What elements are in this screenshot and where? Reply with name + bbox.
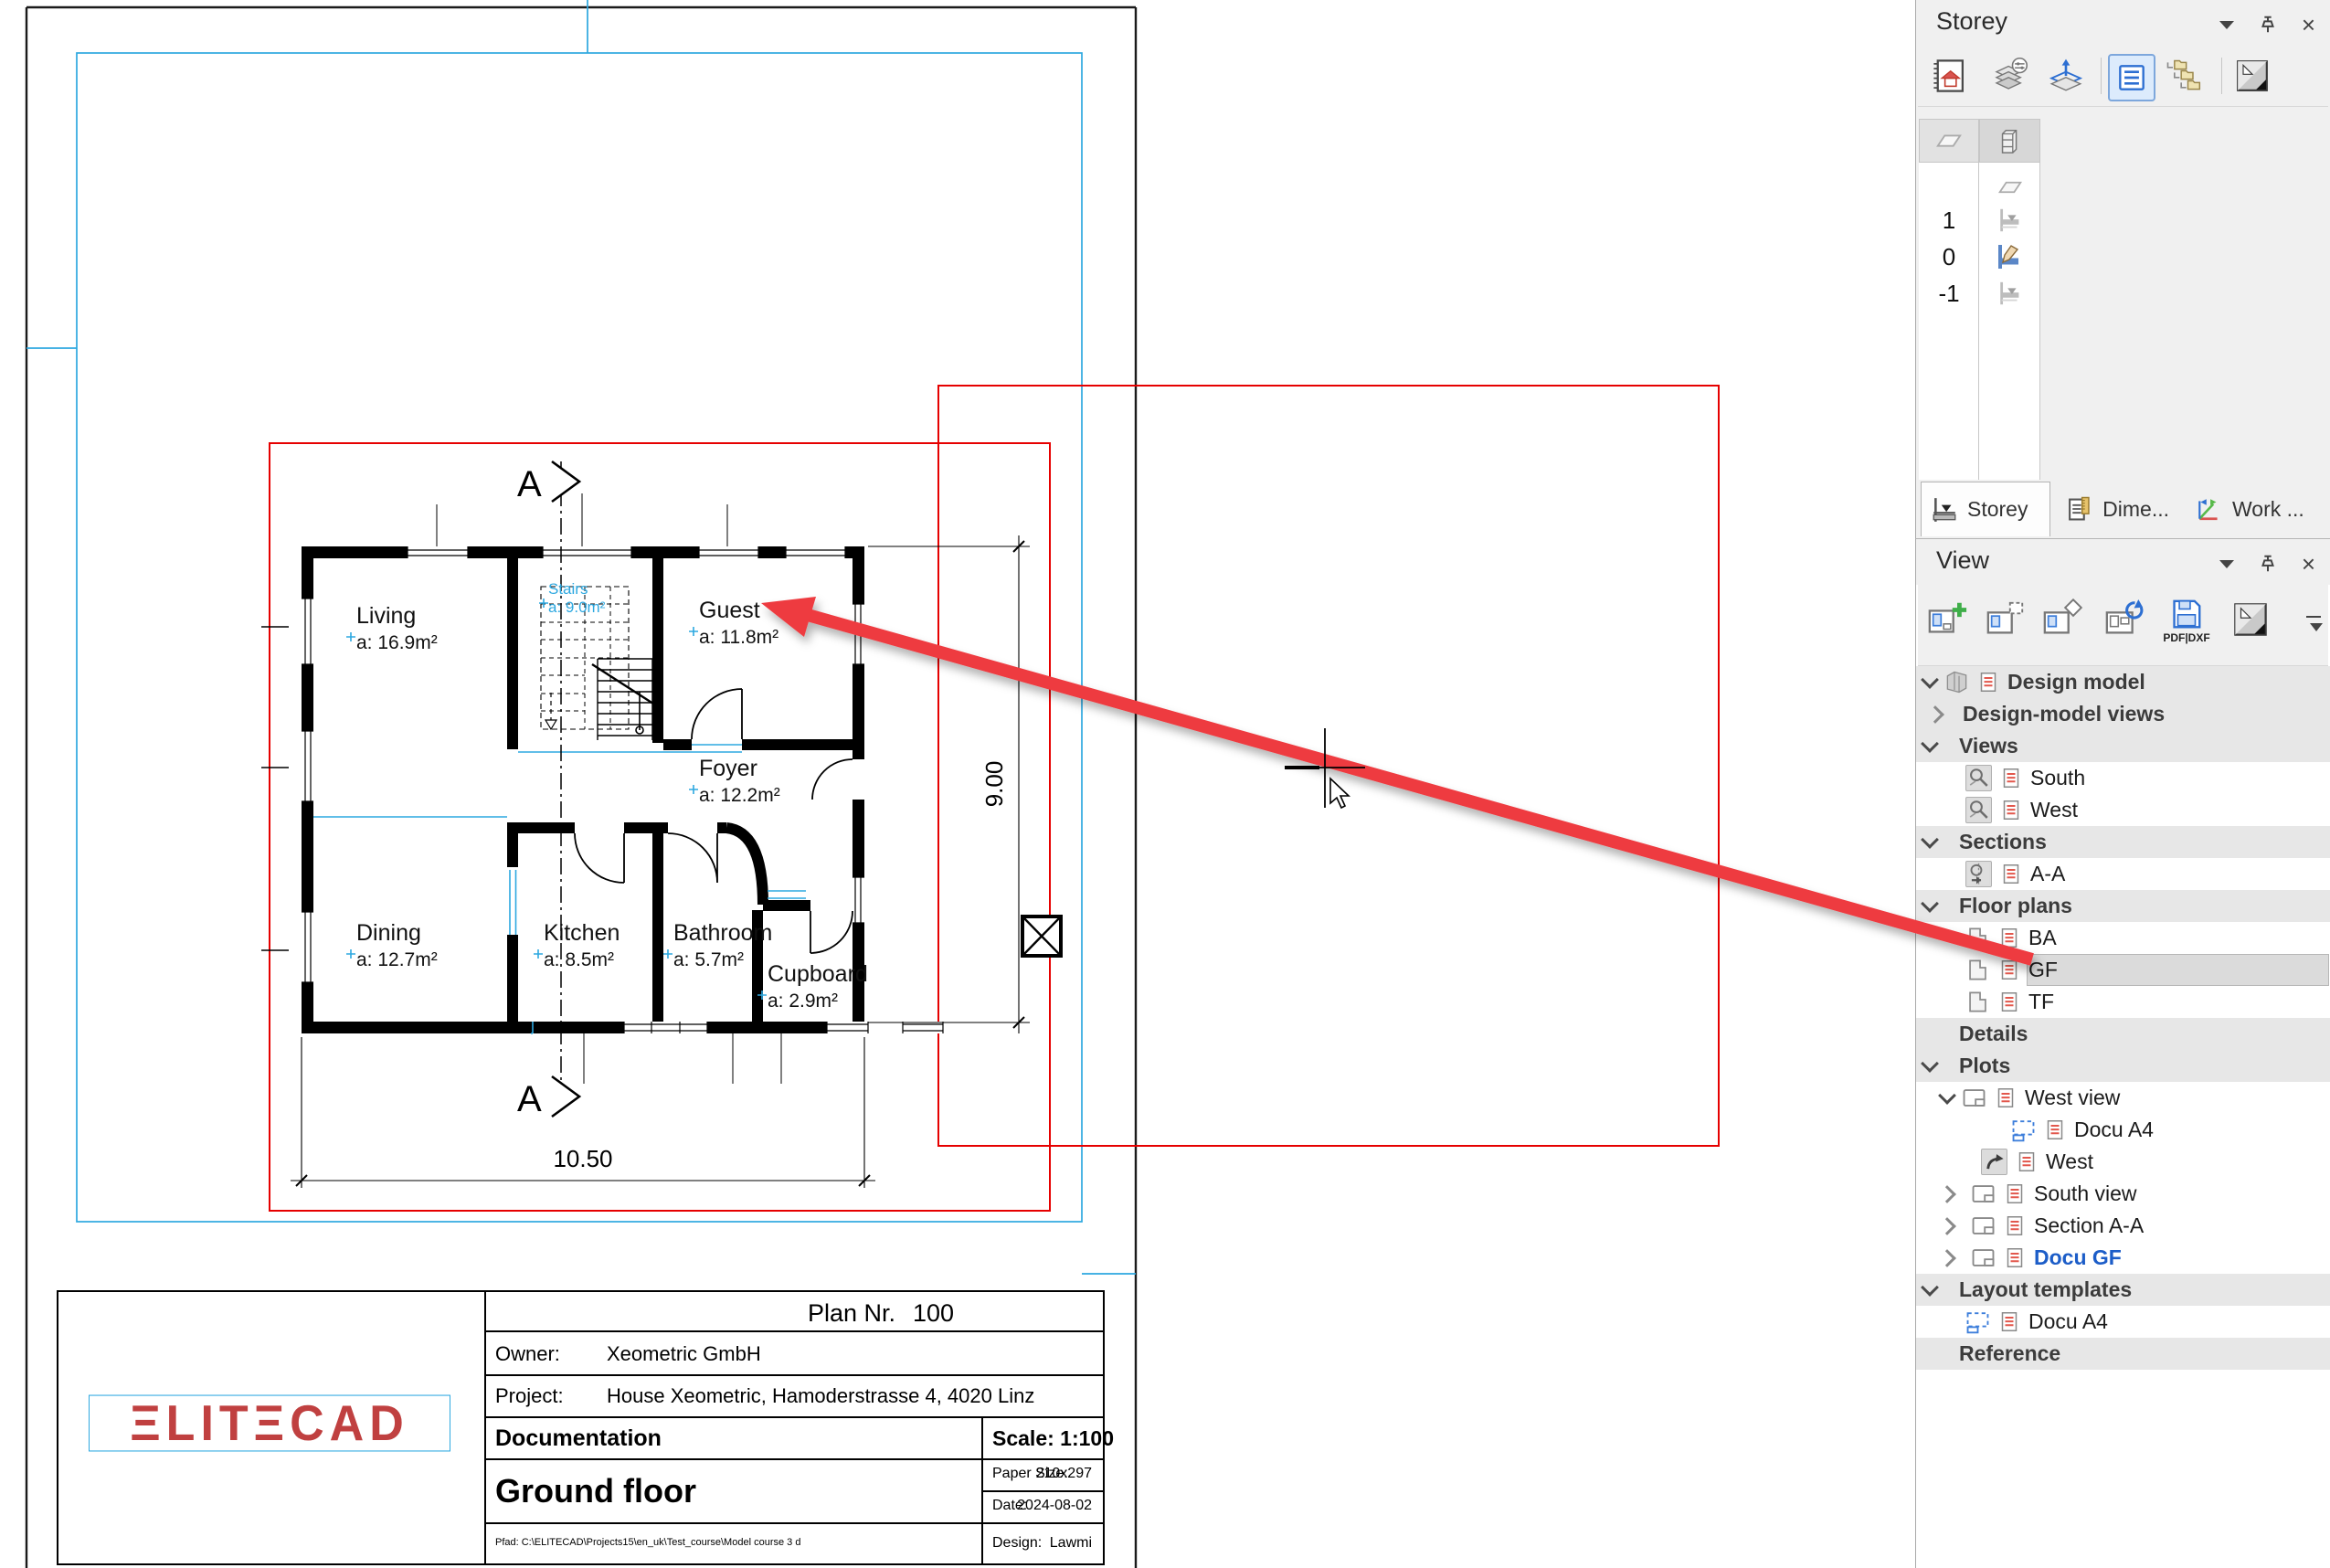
doc-icon	[1998, 1309, 2020, 1334]
level-icon	[1996, 280, 2024, 307]
doc-icon	[2044, 1118, 2066, 1142]
doc-icon	[2004, 1181, 2026, 1206]
storey-col-plan-header[interactable]	[1919, 119, 1979, 163]
storey-level-1-state[interactable]	[1979, 203, 2040, 238]
invert-display-button[interactable]	[2229, 598, 2272, 641]
storey-up-icon	[2047, 57, 2085, 95]
export-pdf-dxf-button[interactable]: PDF|DXF	[2159, 590, 2214, 651]
tab-storey[interactable]: Storey	[1921, 482, 2050, 536]
storey-level-1[interactable]: 1	[1919, 203, 1979, 238]
plan-parallelogram-icon	[1997, 175, 2023, 200]
storey-level-1-label: 1	[1919, 207, 1979, 235]
layout-frame-icon	[2011, 1118, 2036, 1142]
room-bathroom: Bathroom	[673, 920, 772, 946]
pin-icon[interactable]	[2258, 554, 2278, 574]
view-panel: View × PDF|DXF Design model Design-model…	[1915, 538, 2330, 1568]
tree-item-west-view[interactable]: West view	[1916, 1082, 2330, 1114]
storey-level-minus1[interactable]: -1	[1919, 276, 1979, 311]
doc-icon	[1995, 1086, 2017, 1110]
windows-right	[853, 604, 864, 923]
doc-icon	[1998, 958, 2020, 982]
crosshair-cursor	[1285, 728, 1365, 808]
floor-title: Ground floor	[495, 1472, 696, 1510]
svg-text:A: A	[517, 1079, 542, 1119]
tab-storey-label: Storey	[1967, 497, 2028, 522]
update-view-button[interactable]	[2102, 598, 2146, 641]
owner-value: Xeometric GmbH	[607, 1342, 761, 1366]
tree-item-a-a[interactable]: A-A	[1916, 858, 2330, 890]
toolbar-overflow-icon[interactable]	[2306, 616, 2321, 618]
room-stairs: Stairs	[548, 580, 588, 598]
stack-icon	[1996, 127, 2024, 154]
tree-item-design-model[interactable]: Design model	[1916, 666, 2330, 698]
room-kitchen: Kitchen	[544, 920, 620, 946]
invert-display-button[interactable]	[2230, 54, 2274, 98]
cyan-accents	[313, 745, 806, 1033]
plan-parallelogram-icon	[1935, 127, 1963, 154]
storey-structure-button[interactable]	[2044, 54, 2088, 98]
panel-menu-icon[interactable]	[2219, 21, 2234, 29]
storey-settings-button[interactable]	[1987, 54, 2031, 98]
storey-settings-icon	[1990, 57, 2028, 95]
doors	[575, 689, 853, 953]
storey-list-button[interactable]	[2108, 54, 2155, 101]
view-tree: Design model Design-model views Views So…	[1916, 666, 2330, 1370]
view-icon	[1965, 797, 1992, 823]
dimension-width-text: 10.50	[553, 1145, 612, 1172]
tree-item-reference[interactable]: Reference	[1916, 1338, 2330, 1370]
panel-menu-icon[interactable]	[2219, 560, 2234, 568]
dimension-width	[291, 1037, 875, 1188]
floor-plan-icon	[1965, 958, 1990, 982]
doc-icon	[2000, 862, 2022, 886]
copy-view-button[interactable]	[1984, 598, 2028, 641]
pdf-dxf-label: PDF|DXF	[2163, 631, 2209, 644]
tree-item-design-model-views[interactable]: Design-model views	[1916, 698, 2330, 730]
tree-item-docu-a4-west[interactable]: Docu A4	[1916, 1114, 2330, 1146]
plot-origin-marker	[1022, 916, 1061, 956]
tree-item-south-view[interactable]: South view	[1916, 1178, 2330, 1210]
storey-level-minus1-state[interactable]	[1979, 276, 2040, 311]
new-view-icon	[1926, 599, 1968, 641]
tree-item-section-a-a[interactable]: Section A-A	[1916, 1210, 2330, 1242]
tree-item-ba[interactable]: BA	[1916, 922, 2330, 954]
plot-icon	[1971, 1245, 1996, 1270]
storey-panel: Storey × 1 0 -1	[1915, 0, 2330, 538]
room-guest: Guest	[699, 598, 760, 623]
mouse-pointer	[1330, 779, 1349, 808]
update-view-icon	[2103, 599, 2145, 641]
invert-icon	[2234, 58, 2271, 94]
elitecad-logo: ΞLITΞCAD	[89, 1395, 450, 1452]
room-foyer: Foyer	[699, 756, 757, 781]
design-model-icon	[1944, 670, 1969, 694]
close-icon[interactable]: ×	[2302, 16, 2315, 34]
room-guest-area: a: 11.8m²	[699, 627, 778, 648]
design-label: Design:	[992, 1535, 1042, 1552]
doc-icon	[2000, 798, 2022, 822]
plot-frame-left[interactable]	[270, 443, 1050, 1211]
storey-level-0[interactable]: 0	[1919, 239, 1979, 274]
tree-item-plots[interactable]: Plots	[1916, 1050, 2330, 1082]
doc-icon	[1998, 926, 2020, 950]
tree-item-tf[interactable]: TF	[1916, 986, 2330, 1018]
section-icon	[1965, 861, 1992, 887]
room-dining: Dining	[356, 920, 421, 946]
room-cupboard: Cupboard	[768, 961, 868, 987]
svg-text:A: A	[517, 464, 542, 504]
tree-item-west[interactable]: West	[1916, 794, 2330, 826]
workplane-tab-icon	[2196, 495, 2223, 523]
windows-left	[261, 599, 313, 982]
plot-path: Pfad: C:\ELITECAD\Projects15\en_uk\Test_…	[495, 1537, 800, 1548]
room-foyer-area: a: 12.2m²	[699, 785, 780, 806]
room-bathroom-area: a: 5.7m²	[673, 949, 744, 970]
pin-icon[interactable]	[2258, 15, 2278, 35]
new-view-button[interactable]	[1925, 598, 1969, 641]
view-icon	[1965, 765, 1992, 791]
title-block: ΞLITΞCAD Plan Nr. 100 Owner: Xeometric G…	[57, 1290, 1105, 1565]
storey-list-icon	[2114, 60, 2149, 95]
room-cupboard-area: a: 2.9m²	[768, 991, 838, 1012]
doc-title: Documentation	[495, 1425, 662, 1452]
plan-nr-label: Plan Nr.	[808, 1299, 895, 1328]
dimensions-tab-icon	[2067, 495, 2093, 523]
plot-frame-right[interactable]	[938, 386, 1719, 1146]
save-pdf-icon	[2169, 597, 2204, 631]
tree-item-gf[interactable]: GF	[1916, 954, 2330, 986]
doc-icon	[2004, 1245, 2026, 1270]
annotation-arrow	[761, 597, 2032, 959]
axis-extensions	[437, 493, 781, 1084]
owner-label: Owner:	[495, 1342, 560, 1366]
storey-tab-icon	[1931, 496, 1958, 524]
storey-row-roof[interactable]	[1979, 170, 2040, 205]
room-dining-area: a: 12.7m²	[356, 949, 438, 970]
tree-item-views[interactable]: Views	[1916, 730, 2330, 762]
scale-label: Scale: 1:100	[992, 1426, 1114, 1451]
tree-item-floor-plans[interactable]: Floor plans	[1916, 890, 2330, 922]
active-level-edit-icon	[1996, 242, 2025, 271]
tab-workplane[interactable]: Work ...	[2187, 482, 2329, 536]
folder-tree-icon	[2163, 56, 2203, 96]
doc-icon	[1998, 990, 2020, 1014]
room-ref-points	[346, 599, 767, 1000]
room-labels: Living a: 16.9m² Guest a: 11.8m² Foyer a…	[356, 580, 868, 1012]
dimension-height-text: 9.00	[980, 761, 1008, 808]
group-structure-button[interactable]	[2161, 54, 2205, 98]
selection-highlight	[2027, 954, 2329, 986]
paper-value: 210x297	[1036, 1466, 1092, 1482]
project-label: Project:	[495, 1384, 564, 1408]
room-stairs-area: a: 9.0m²	[548, 599, 606, 616]
room-living-area: a: 16.9m²	[356, 632, 438, 653]
storey-manager-button[interactable]	[1927, 54, 1971, 98]
storey-level-minus1-label: -1	[1919, 280, 1979, 308]
section-marker-bottom: A	[517, 1076, 579, 1119]
layout-frame-icon	[1965, 1309, 1990, 1334]
tree-item-sections[interactable]: Sections	[1916, 826, 2330, 858]
windows-bottom	[624, 1022, 943, 1033]
tab-dimensions-label: Dime...	[2102, 497, 2169, 522]
level-icon	[1996, 207, 2024, 234]
room-kitchen-area: a: 8.5m²	[544, 949, 614, 970]
tab-dimensions[interactable]: Dime...	[2058, 482, 2178, 536]
toolbar-overflow-arrow-icon[interactable]	[2310, 623, 2323, 631]
floor-plan[interactable]: A A 10.50 9.00	[261, 461, 1061, 1188]
stairs	[541, 587, 656, 740]
tree-item-west-plot[interactable]: West	[1916, 1146, 2330, 1178]
date-value: 2024-08-02	[1017, 1498, 1092, 1514]
tree-item-docu-a4-template[interactable]: Docu A4	[1916, 1306, 2330, 1338]
project-value: House Xeometric, Hamoderstrasse 4, 4020 …	[607, 1384, 1034, 1408]
rotate-view-icon	[2041, 599, 2083, 641]
invert-icon	[2231, 600, 2270, 639]
copy-view-icon	[1985, 599, 2027, 641]
view-panel-title: View	[1936, 546, 1989, 575]
doc-icon	[2016, 1150, 2038, 1174]
room-living: Living	[356, 603, 416, 629]
doc-icon	[1977, 670, 1999, 694]
tab-workplane-label: Work ...	[2232, 497, 2304, 522]
storey-panel-title: Storey	[1936, 7, 2007, 36]
tree-item-docu-gf[interactable]: Docu GF	[1916, 1242, 2330, 1274]
storey-col-model-header[interactable]	[1979, 119, 2040, 163]
tree-item-details[interactable]: Details	[1916, 1018, 2330, 1050]
plot-icon	[1962, 1086, 1986, 1110]
tree-item-south[interactable]: South	[1916, 762, 2330, 794]
doc-icon	[2004, 1213, 2026, 1238]
tree-item-layout-templates[interactable]: Layout templates	[1916, 1274, 2330, 1306]
doc-icon	[2000, 766, 2022, 790]
rotate-view-button[interactable]	[2040, 598, 2084, 641]
storey-level-0-state[interactable]	[1979, 239, 2040, 274]
notebook-house-icon	[1930, 57, 1968, 95]
section-marker-top: A	[517, 461, 579, 504]
interior-walls	[507, 558, 853, 1022]
close-icon[interactable]: ×	[2302, 555, 2315, 573]
windows-top	[408, 546, 845, 558]
design-value: Lawmi	[1050, 1535, 1092, 1552]
dimension-height	[868, 535, 1030, 1033]
plan-nr-value: 100	[913, 1299, 954, 1328]
plot-icon	[1971, 1181, 1996, 1206]
goto-arrow-icon	[1981, 1149, 2007, 1175]
plot-icon	[1971, 1213, 1996, 1238]
floor-plan-icon	[1965, 926, 1990, 950]
floor-plan-icon	[1965, 990, 1990, 1014]
application-window: A A 10.50 9.00	[0, 0, 2330, 1568]
storey-level-0-label: 0	[1919, 243, 1979, 271]
curved-wall	[726, 828, 763, 905]
layout-template-frame[interactable]	[26, 0, 1136, 1274]
